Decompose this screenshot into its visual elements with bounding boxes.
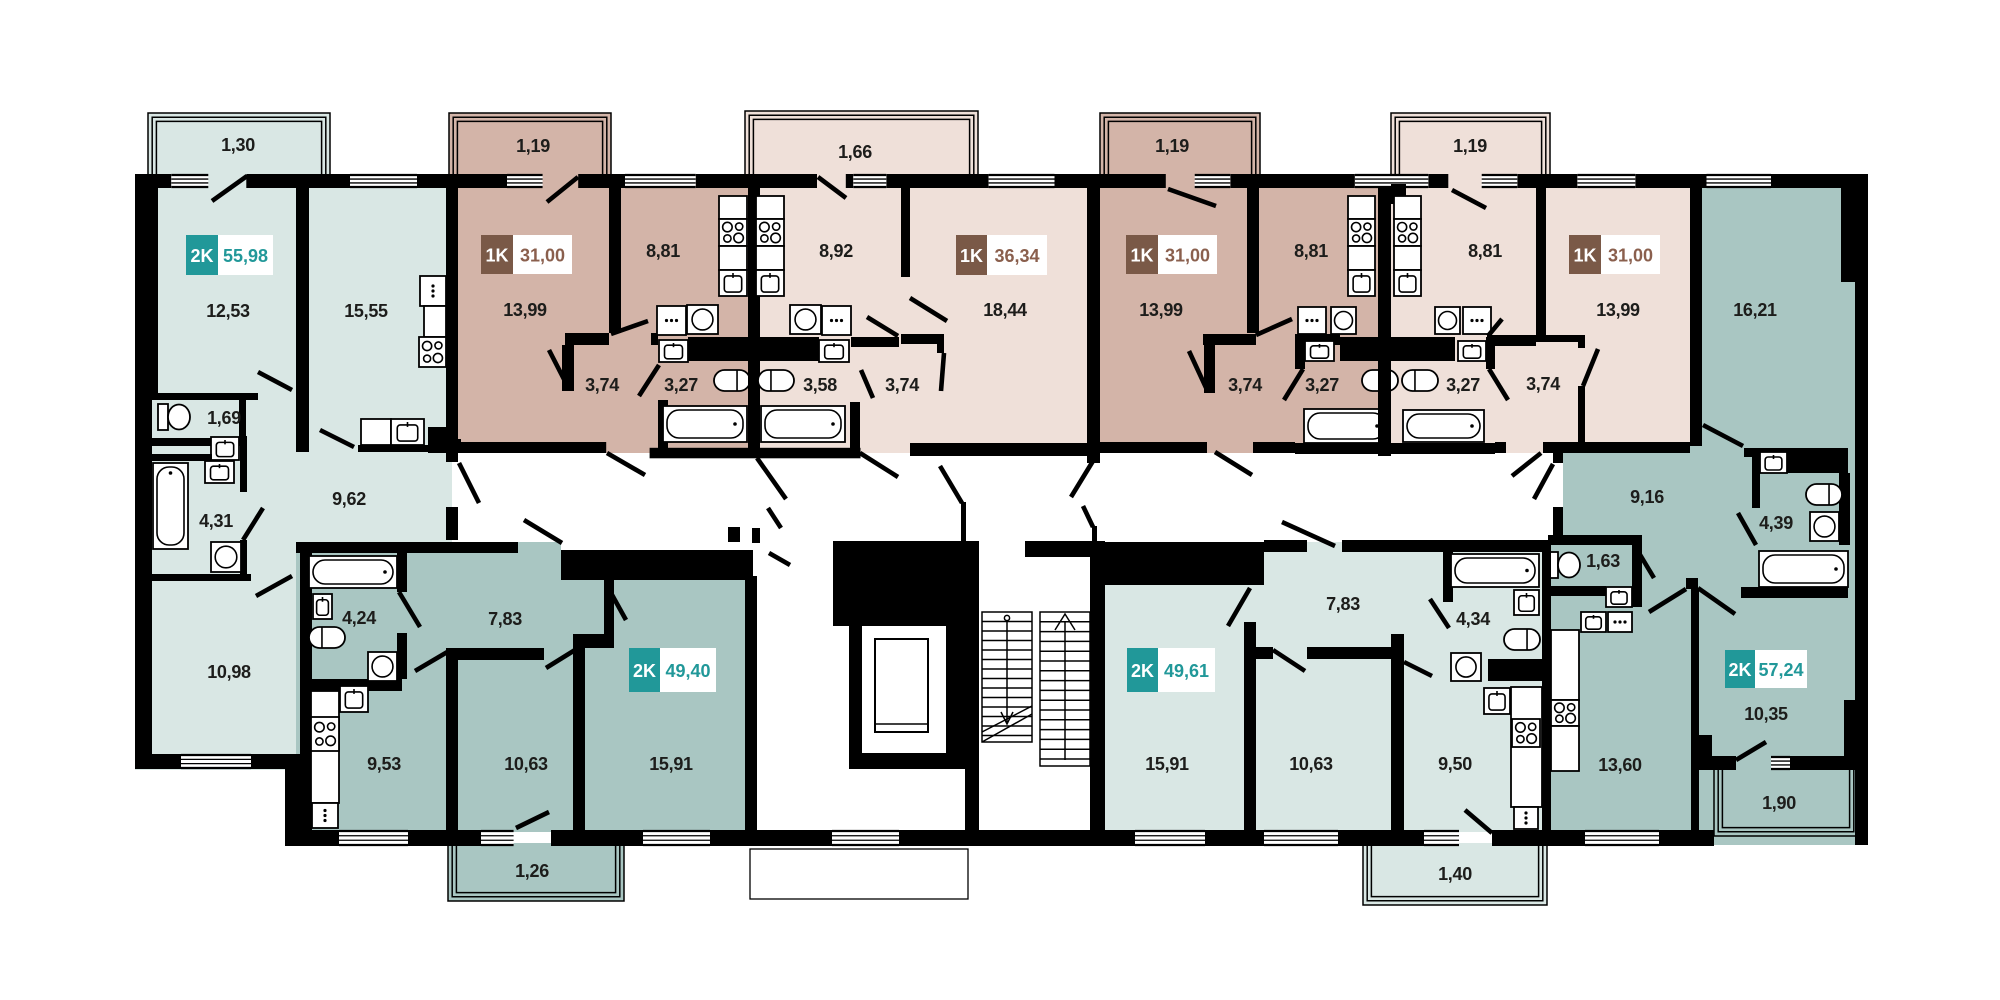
svg-text:49,61: 49,61 [1164,661,1209,681]
svg-text:1,69: 1,69 [207,408,241,428]
svg-text:4,31: 4,31 [199,511,233,531]
svg-text:13,99: 13,99 [1596,300,1640,320]
svg-text:1,30: 1,30 [221,135,255,155]
svg-text:15,91: 15,91 [1145,754,1189,774]
svg-text:1,90: 1,90 [1762,793,1796,813]
svg-text:31,00: 31,00 [1165,246,1210,266]
svg-text:12,53: 12,53 [206,301,250,321]
svg-text:15,91: 15,91 [649,754,693,774]
svg-text:3,74: 3,74 [1526,374,1560,394]
svg-text:3,74: 3,74 [885,375,919,395]
svg-text:15,55: 15,55 [344,301,388,321]
svg-text:1,19: 1,19 [516,136,550,156]
svg-text:2K: 2K [1728,660,1751,680]
svg-text:1,19: 1,19 [1155,136,1189,156]
svg-text:3,27: 3,27 [664,375,698,395]
svg-text:7,83: 7,83 [1326,594,1360,614]
svg-text:1,19: 1,19 [1453,136,1487,156]
svg-text:31,00: 31,00 [520,246,565,266]
svg-text:3,74: 3,74 [585,375,619,395]
svg-text:1K: 1K [960,246,983,266]
svg-text:36,34: 36,34 [994,246,1039,266]
svg-text:2K: 2K [633,661,656,681]
svg-text:8,81: 8,81 [646,241,680,261]
svg-text:3,74: 3,74 [1228,375,1262,395]
svg-text:1,40: 1,40 [1438,864,1472,884]
svg-text:13,60: 13,60 [1598,755,1642,775]
svg-text:1K: 1K [1573,246,1596,266]
svg-text:3,27: 3,27 [1305,375,1339,395]
svg-text:10,63: 10,63 [504,754,548,774]
svg-text:9,53: 9,53 [367,754,401,774]
svg-text:31,00: 31,00 [1608,246,1653,266]
svg-text:1,26: 1,26 [515,861,549,881]
svg-text:9,62: 9,62 [332,489,366,509]
svg-text:1,63: 1,63 [1586,551,1620,571]
svg-text:10,98: 10,98 [207,662,251,682]
svg-text:9,50: 9,50 [1438,754,1472,774]
svg-text:57,24: 57,24 [1758,660,1803,680]
svg-text:8,81: 8,81 [1468,241,1502,261]
svg-text:9,16: 9,16 [1630,487,1664,507]
svg-text:55,98: 55,98 [223,246,268,266]
svg-text:8,92: 8,92 [819,241,853,261]
svg-text:7,83: 7,83 [488,609,522,629]
svg-text:1K: 1K [1130,246,1153,266]
svg-text:18,44: 18,44 [983,300,1027,320]
svg-text:13,99: 13,99 [1139,300,1183,320]
svg-text:13,99: 13,99 [503,300,547,320]
svg-text:4,39: 4,39 [1759,513,1793,533]
svg-text:2K: 2K [1131,661,1154,681]
svg-text:2K: 2K [190,246,213,266]
svg-text:16,21: 16,21 [1733,300,1777,320]
svg-text:1,66: 1,66 [838,142,872,162]
svg-text:4,24: 4,24 [342,608,376,628]
svg-text:3,27: 3,27 [1446,375,1480,395]
svg-text:8,81: 8,81 [1294,241,1328,261]
svg-text:49,40: 49,40 [665,661,710,681]
svg-text:1K: 1K [485,246,508,266]
svg-text:3,58: 3,58 [803,375,837,395]
svg-text:4,34: 4,34 [1456,609,1490,629]
svg-text:10,63: 10,63 [1289,754,1333,774]
svg-text:10,35: 10,35 [1744,704,1788,724]
